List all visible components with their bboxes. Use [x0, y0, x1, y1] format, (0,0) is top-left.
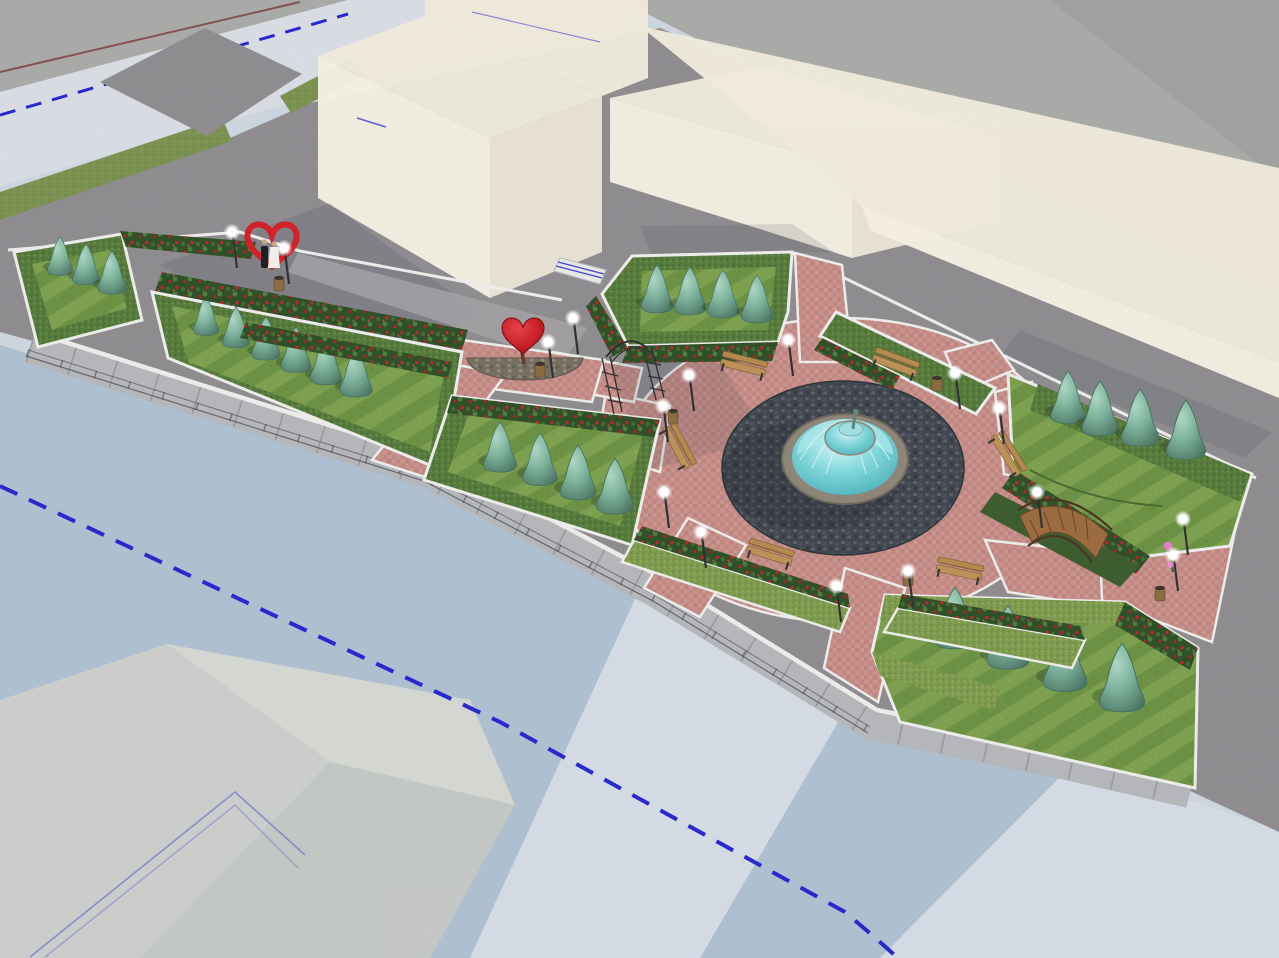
grain-overlay [0, 0, 1279, 958]
scene-canvas [0, 0, 1279, 958]
render-viewport [0, 0, 1279, 958]
